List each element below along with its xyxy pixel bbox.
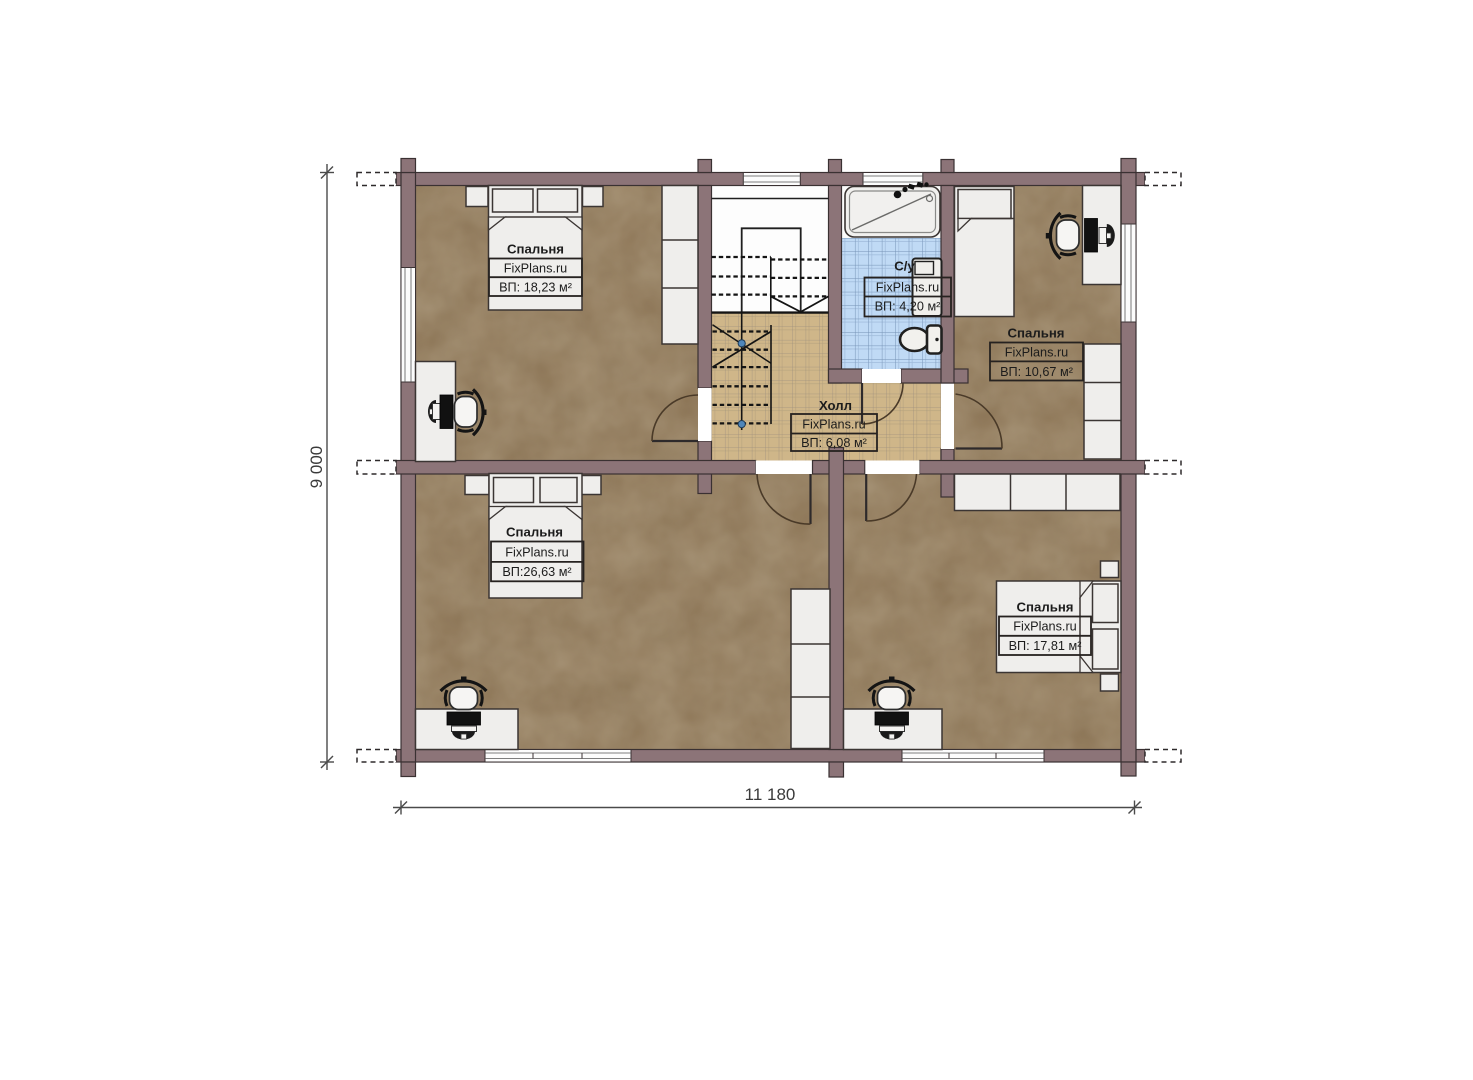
svg-text:11 180: 11 180 <box>745 785 796 804</box>
svg-text:FixPlans.ru: FixPlans.ru <box>1013 620 1076 634</box>
svg-text:ВП: 4,20 м²: ВП: 4,20 м² <box>875 300 941 314</box>
svg-text:ВП: 10,67 м²: ВП: 10,67 м² <box>1000 365 1073 379</box>
svg-text:FixPlans.ru: FixPlans.ru <box>876 281 939 295</box>
svg-text:Спальня: Спальня <box>506 525 563 540</box>
svg-text:Холл: Холл <box>819 398 852 413</box>
svg-text:FixPlans.ru: FixPlans.ru <box>802 418 865 432</box>
svg-text:Спальня: Спальня <box>507 242 564 257</box>
svg-text:С/у: С/у <box>894 259 915 274</box>
svg-text:FixPlans.ru: FixPlans.ru <box>1005 346 1068 360</box>
svg-text:ВП: 17,81 м²: ВП: 17,81 м² <box>1009 639 1082 653</box>
svg-text:FixPlans.ru: FixPlans.ru <box>505 546 568 560</box>
svg-text:Спальня: Спальня <box>1008 326 1065 341</box>
svg-text:FixPlans.ru: FixPlans.ru <box>504 262 567 276</box>
svg-text:ВП:26,63 м²: ВП:26,63 м² <box>502 565 571 579</box>
svg-text:9 000: 9 000 <box>307 446 326 489</box>
svg-text:Спальня: Спальня <box>1017 600 1074 615</box>
svg-text:ВП: 18,23 м²: ВП: 18,23 м² <box>499 281 572 295</box>
svg-text:ВП: 6,08 м²: ВП: 6,08 м² <box>801 436 867 450</box>
